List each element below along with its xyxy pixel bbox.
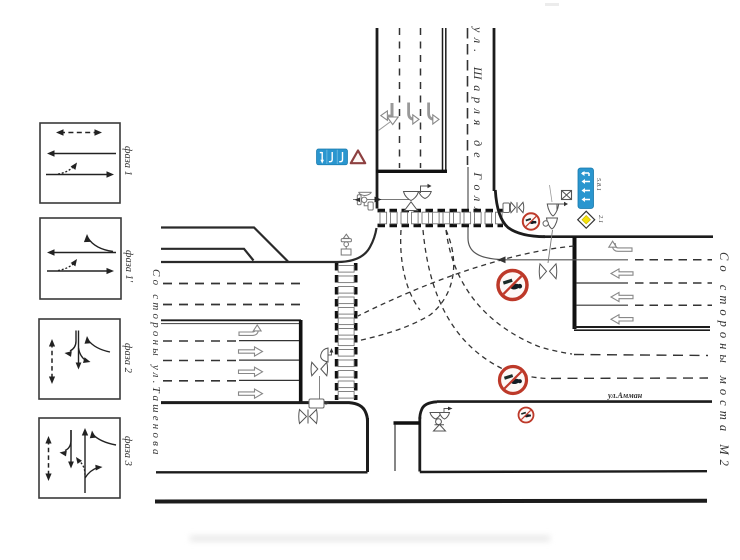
svg-text:ул. Шарля де Голля: ул. Шарля де Голля	[471, 26, 485, 230]
svg-text:5.8.1: 5.8.1	[595, 178, 602, 191]
svg-text:Со стороны ул.Ташенова: Со стороны ул.Ташенова	[150, 269, 162, 458]
svg-text:ул.Амман: ул.Амман	[607, 391, 643, 400]
svg-text:2.1: 2.1	[597, 215, 604, 223]
svg-text:фаза 3: фаза 3	[122, 436, 133, 466]
svg-text:фаза 2: фаза 2	[122, 343, 133, 374]
svg-text:фаза 1: фаза 1	[122, 146, 133, 176]
svg-text:фаза 1': фаза 1'	[123, 250, 134, 283]
svg-text:Со стороны моста М2: Со стороны моста М2	[717, 252, 731, 471]
